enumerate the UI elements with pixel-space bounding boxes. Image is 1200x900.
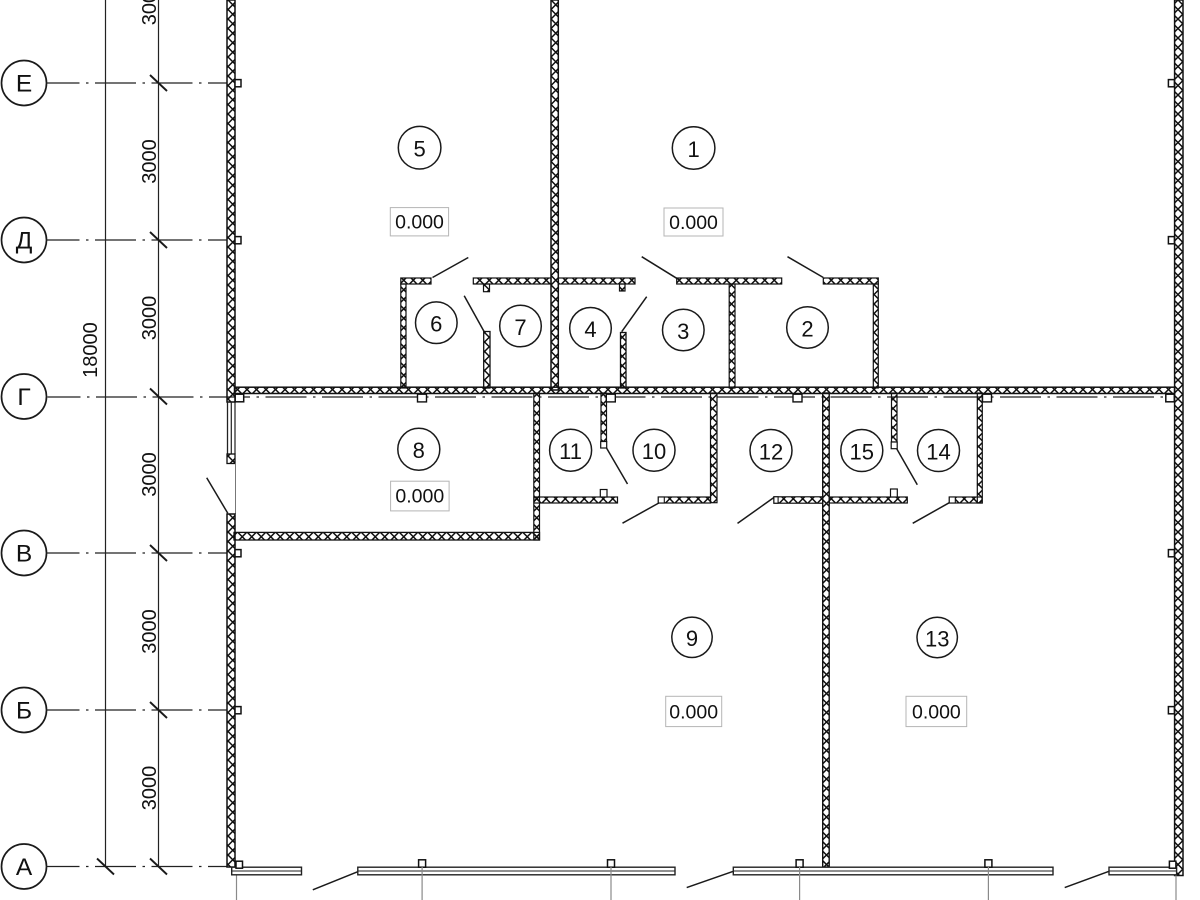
svg-text:8: 8 (413, 438, 425, 463)
svg-text:4: 4 (584, 317, 596, 342)
svg-text:3000: 3000 (139, 766, 161, 811)
svg-text:9: 9 (686, 626, 698, 651)
svg-text:3000: 3000 (139, 139, 161, 184)
svg-text:5: 5 (413, 137, 425, 162)
svg-text:15: 15 (850, 439, 874, 464)
svg-text:Г: Г (17, 384, 30, 411)
svg-text:0.000: 0.000 (669, 701, 718, 723)
svg-text:2: 2 (801, 316, 813, 341)
svg-text:А: А (16, 854, 33, 881)
svg-text:0.000: 0.000 (395, 486, 444, 508)
svg-text:3000: 3000 (139, 296, 161, 341)
svg-text:3000: 3000 (139, 609, 161, 654)
svg-text:13: 13 (925, 626, 949, 651)
svg-text:6: 6 (430, 312, 442, 337)
svg-text:11: 11 (559, 439, 582, 464)
svg-text:10: 10 (642, 439, 666, 464)
svg-text:14: 14 (926, 439, 950, 464)
svg-text:Д: Д (16, 228, 33, 255)
svg-text:0.000: 0.000 (912, 701, 961, 723)
svg-text:3000: 3000 (139, 452, 161, 497)
svg-text:Б: Б (16, 698, 32, 725)
svg-text:3000: 3000 (139, 0, 161, 25)
svg-text:0.000: 0.000 (669, 212, 718, 234)
svg-text:3: 3 (677, 319, 689, 344)
svg-text:0.000: 0.000 (395, 212, 444, 234)
svg-text:7: 7 (514, 315, 526, 340)
svg-text:Е: Е (16, 71, 32, 98)
svg-text:12: 12 (759, 439, 783, 464)
svg-text:В: В (16, 541, 32, 568)
svg-text:18000: 18000 (80, 322, 102, 378)
svg-text:1: 1 (687, 137, 699, 162)
